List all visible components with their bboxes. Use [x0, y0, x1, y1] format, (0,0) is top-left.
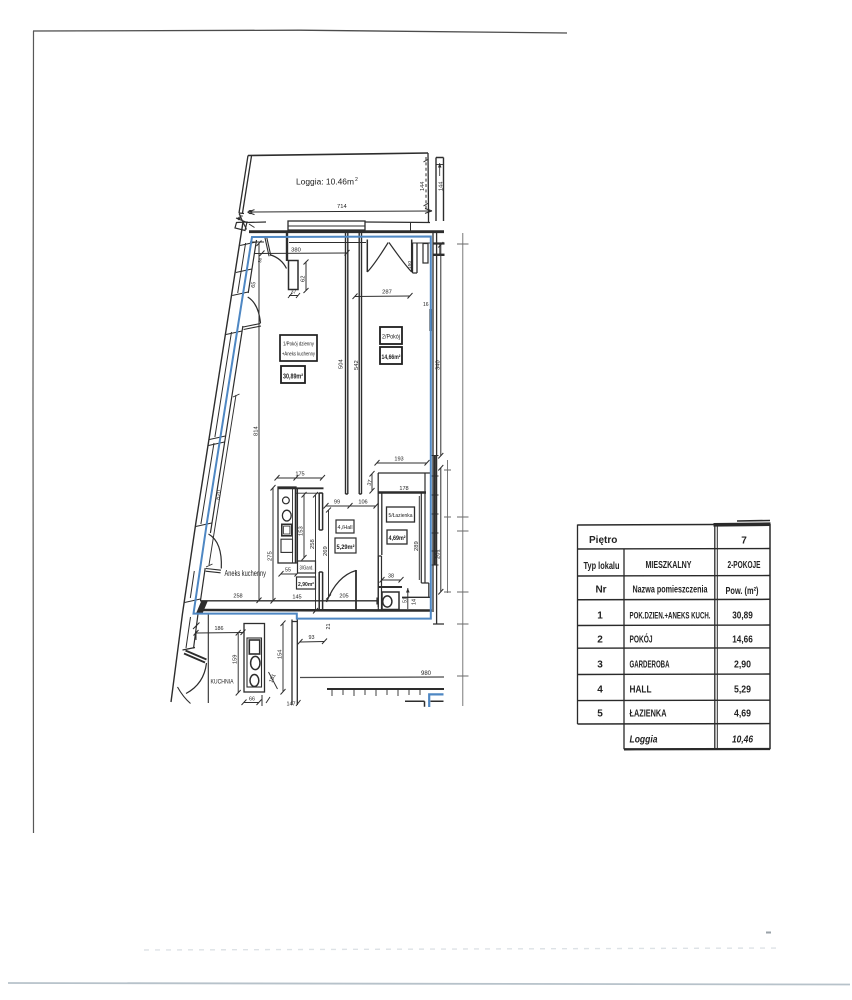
- svg-text:258: 258: [233, 594, 242, 600]
- svg-text:5/Łazienka: 5/Łazienka: [389, 513, 414, 519]
- svg-text:175: 175: [295, 472, 304, 478]
- svg-text:4,69: 4,69: [734, 709, 751, 720]
- svg-text:4: 4: [597, 685, 603, 696]
- svg-text:Typ lokalu: Typ lokalu: [584, 561, 620, 572]
- svg-text:POK.DZIEN.+ANEKS KUCH.: POK.DZIEN.+ANEKS KUCH.: [630, 611, 711, 621]
- svg-text:3: 3: [597, 660, 603, 671]
- svg-text:159: 159: [233, 655, 239, 664]
- svg-text:21: 21: [326, 624, 332, 630]
- svg-text:380: 380: [291, 248, 301, 254]
- svg-text:145: 145: [292, 595, 301, 601]
- svg-text:30,89m²: 30,89m²: [283, 373, 304, 380]
- svg-text:620: 620: [216, 490, 223, 500]
- svg-text:+Aneks kuchenny: +Aneks kuchenny: [282, 352, 315, 358]
- svg-text:30,89: 30,89: [732, 611, 753, 622]
- svg-text:Loggia: 10.46m: Loggia: 10.46m: [296, 178, 354, 187]
- svg-text:3/Gard.: 3/Gard.: [300, 566, 314, 572]
- svg-text:Loggia: Loggia: [630, 735, 658, 746]
- svg-text:HALL: HALL: [630, 685, 652, 696]
- svg-text:542: 542: [354, 360, 360, 370]
- svg-text:65: 65: [251, 281, 258, 288]
- svg-text:38: 38: [388, 574, 394, 580]
- svg-text:153: 153: [299, 526, 305, 536]
- svg-text:37: 37: [367, 479, 374, 486]
- svg-text:POKÓJ: POKÓJ: [630, 633, 653, 646]
- svg-text:62: 62: [301, 276, 307, 282]
- svg-text:5,29m²: 5,29m²: [337, 544, 355, 551]
- svg-text:14,66m²: 14,66m²: [382, 354, 401, 361]
- svg-text:Nr: Nr: [595, 585, 606, 596]
- svg-text:144: 144: [420, 182, 426, 191]
- svg-text:193: 193: [394, 457, 403, 463]
- svg-text:16: 16: [423, 302, 429, 308]
- svg-text:147: 147: [287, 702, 296, 708]
- svg-text:99: 99: [334, 500, 340, 506]
- svg-text:4,/Hall: 4,/Hall: [338, 525, 353, 531]
- svg-text:Piętro: Piętro: [589, 535, 617, 546]
- svg-text:Pow. (m²): Pow. (m²): [726, 586, 759, 597]
- svg-text:37: 37: [291, 290, 297, 296]
- svg-text:205: 205: [339, 594, 348, 600]
- svg-text:1: 1: [597, 611, 603, 622]
- svg-text:154: 154: [278, 650, 284, 659]
- svg-text:2: 2: [597, 635, 603, 646]
- svg-text:1/Pokój dzienny: 1/Pokój dzienny: [283, 342, 314, 348]
- svg-text:714: 714: [337, 204, 347, 210]
- svg-text:2-POKOJE: 2-POKOJE: [728, 560, 761, 571]
- svg-text:504: 504: [339, 359, 345, 369]
- svg-text:178: 178: [399, 486, 408, 492]
- svg-text:4,69m²: 4,69m²: [389, 535, 406, 542]
- svg-text:14,66: 14,66: [732, 635, 753, 646]
- svg-text:93: 93: [309, 635, 315, 641]
- svg-text:66: 66: [249, 697, 255, 703]
- svg-text:340: 340: [435, 360, 441, 370]
- svg-text:38: 38: [257, 257, 263, 263]
- svg-text:MIESZKALNY: MIESZKALNY: [646, 560, 692, 571]
- svg-text:287: 287: [382, 290, 392, 296]
- svg-text:150: 150: [407, 261, 413, 269]
- svg-text:Nazwa pomieszczenia: Nazwa pomieszczenia: [633, 585, 708, 596]
- svg-text:186: 186: [215, 626, 224, 632]
- svg-text:980: 980: [421, 671, 432, 677]
- svg-text:GARDEROBA: GARDEROBA: [630, 660, 670, 671]
- svg-text:7: 7: [741, 536, 747, 547]
- svg-text:5: 5: [597, 709, 603, 720]
- svg-text:275: 275: [268, 551, 274, 561]
- svg-text:2: 2: [355, 177, 358, 183]
- svg-text:KUCHNIA: KUCHNIA: [211, 679, 234, 686]
- svg-text:14: 14: [411, 599, 417, 605]
- svg-text:201: 201: [435, 549, 441, 559]
- svg-text:2/Pokój: 2/Pokój: [382, 335, 400, 341]
- svg-text:5,29: 5,29: [734, 685, 751, 696]
- svg-text:289: 289: [414, 541, 420, 551]
- svg-text:269: 269: [323, 546, 329, 556]
- svg-text:2,90m²: 2,90m²: [298, 581, 314, 588]
- svg-text:144: 144: [439, 182, 445, 191]
- svg-text:2,90: 2,90: [734, 660, 751, 671]
- svg-text:Aneks kuchenny: Aneks kuchenny: [225, 569, 267, 578]
- svg-text:55: 55: [285, 568, 291, 574]
- svg-text:74: 74: [237, 213, 244, 220]
- svg-text:ŁAZIENKA: ŁAZIENKA: [630, 709, 667, 720]
- svg-text:258: 258: [310, 539, 316, 549]
- svg-text:106: 106: [358, 500, 367, 506]
- svg-text:814: 814: [253, 426, 259, 436]
- svg-text:10,46: 10,46: [732, 735, 753, 746]
